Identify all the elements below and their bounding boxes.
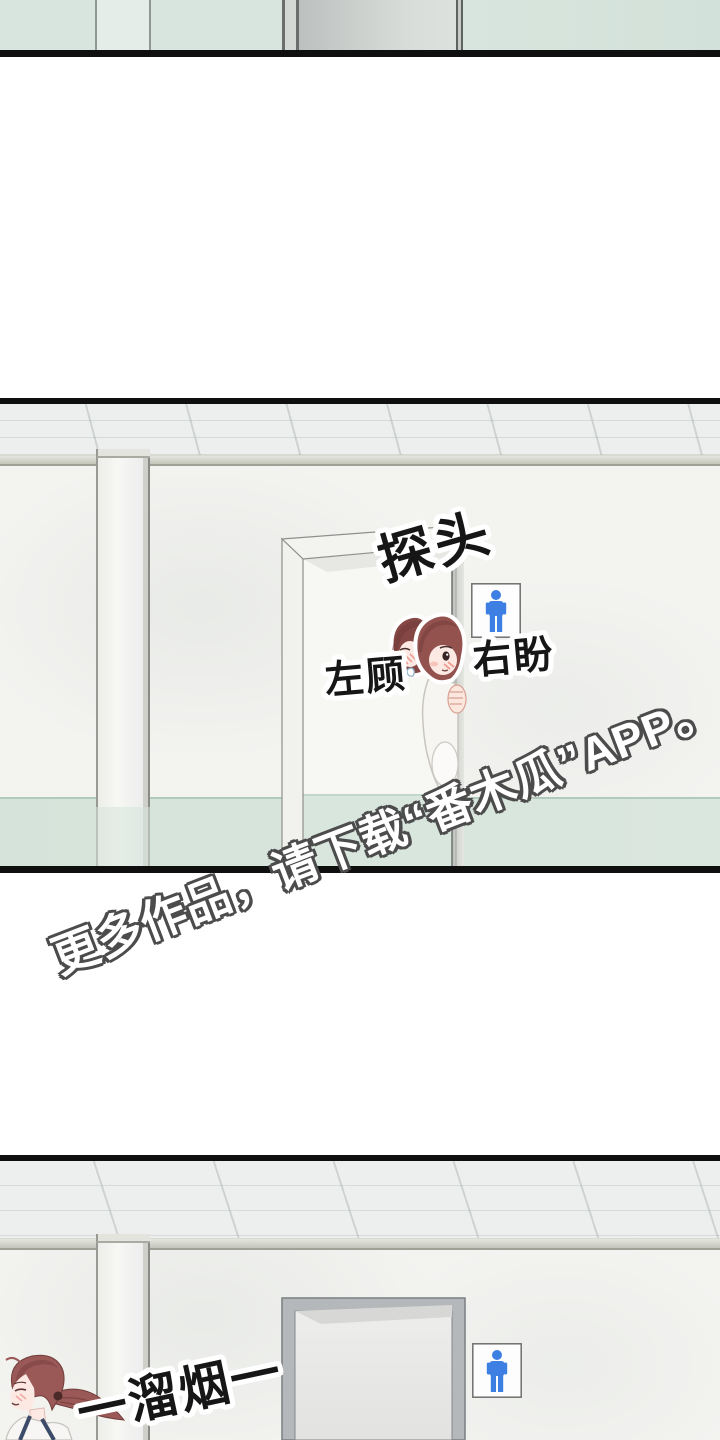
grey-panel: [299, 0, 456, 51]
panel-border: [0, 50, 720, 57]
wall-pillar-side: [143, 449, 150, 866]
label-look-left: 左顾: [323, 655, 408, 703]
wall-pillar-cap: [96, 1234, 150, 1243]
wall-edge-strip: [282, 0, 299, 51]
panel-previous-bottom: [0, 0, 720, 51]
hallway-ceiling: [0, 1161, 720, 1238]
mint-wall-right: [463, 0, 720, 51]
wall-pillar: [96, 449, 143, 866]
wall-pillar-cap: [96, 449, 150, 458]
hallway-ceiling: [0, 404, 720, 455]
comic-page: 探头 左顾 右盼 更多作品，请下载“番木瓜”APP。: [0, 0, 720, 1440]
wall-gap-column: [95, 0, 151, 51]
restroom-door-closed: [275, 1290, 475, 1440]
wall-edge-strip-2: [456, 0, 463, 51]
mens-restroom-sign: [471, 1343, 523, 1398]
label-look-right: 右盼: [471, 635, 556, 683]
wall-pillar-wainscot: [96, 807, 150, 866]
